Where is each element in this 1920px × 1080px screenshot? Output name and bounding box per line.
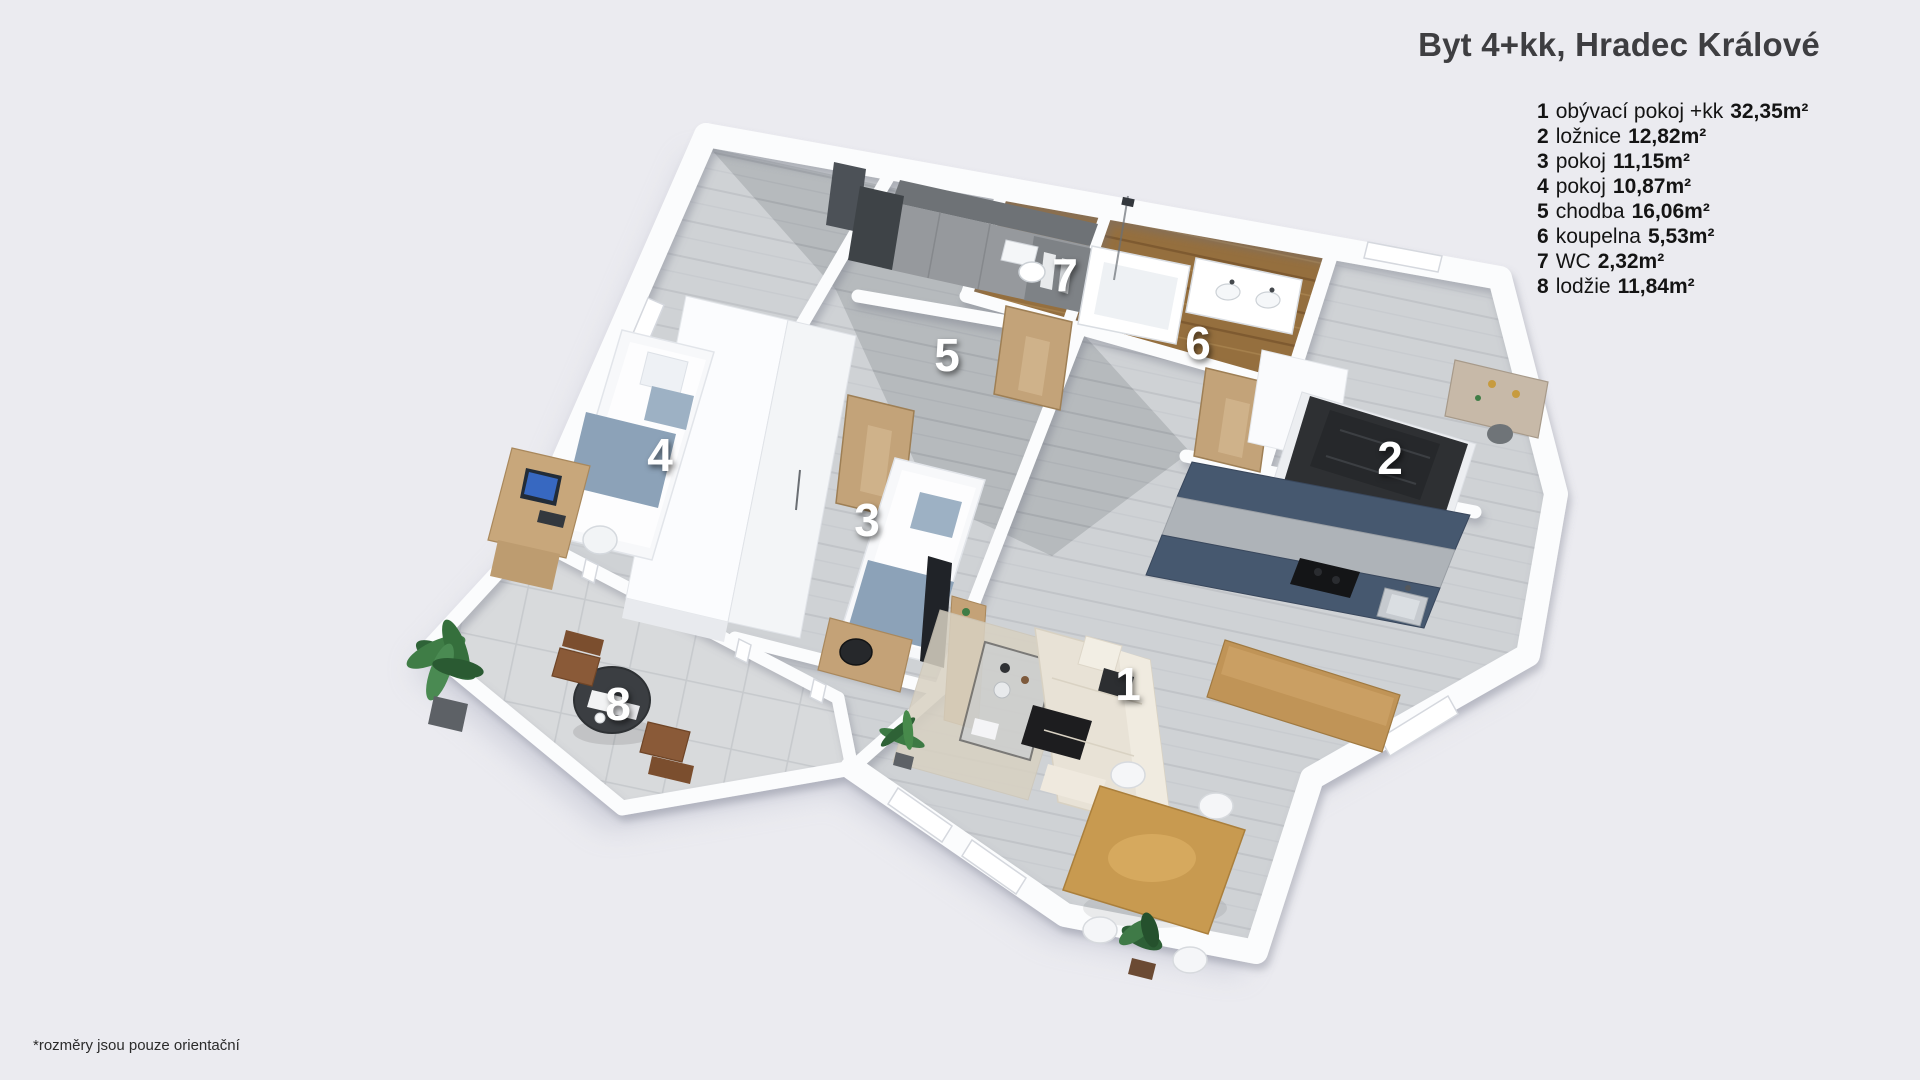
room-label-4: 4 [647,429,673,481]
room-label-7: 7 [1052,249,1078,301]
sink [1216,284,1240,300]
dining-chair [1199,793,1233,819]
room-legend: 1obývací pokoj +kk32,35m²2ložnice12,82m²… [1537,99,1808,299]
dining-chair [1083,917,1117,943]
legend-row: 4pokoj10,87m² [1537,174,1808,199]
office-chair [840,639,872,665]
faucet [1405,585,1411,591]
room-label-5: 5 [934,329,960,381]
desk-chair [583,526,617,554]
legend-row: 8lodžie11,84m² [1537,274,1808,299]
room-label-3: 3 [854,494,880,546]
legend-row: 6koupelna5,53m² [1537,224,1808,249]
legend-row: 7WC2,32m² [1537,249,1808,274]
page-title: Byt 4+kk, Hradec Králové [1020,26,1820,64]
dining-chair [1111,762,1145,788]
stool [1487,424,1513,444]
room-label-1: 1 [1115,658,1141,710]
toilet [1019,262,1045,282]
dining-chair [1173,947,1207,973]
room-label-6: 6 [1185,317,1211,369]
legend-row: 5chodba16,06m² [1537,199,1808,224]
legend-row: 3pokoj11,15m² [1537,149,1808,174]
room-label-2: 2 [1377,432,1403,484]
room-label-8: 8 [605,678,631,730]
sink [1256,292,1280,308]
legend-row: 2ložnice12,82m² [1537,124,1808,149]
legend-row: 1obývací pokoj +kk32,35m² [1537,99,1808,124]
footnote: *rozměry jsou pouze orientační [33,1037,240,1054]
